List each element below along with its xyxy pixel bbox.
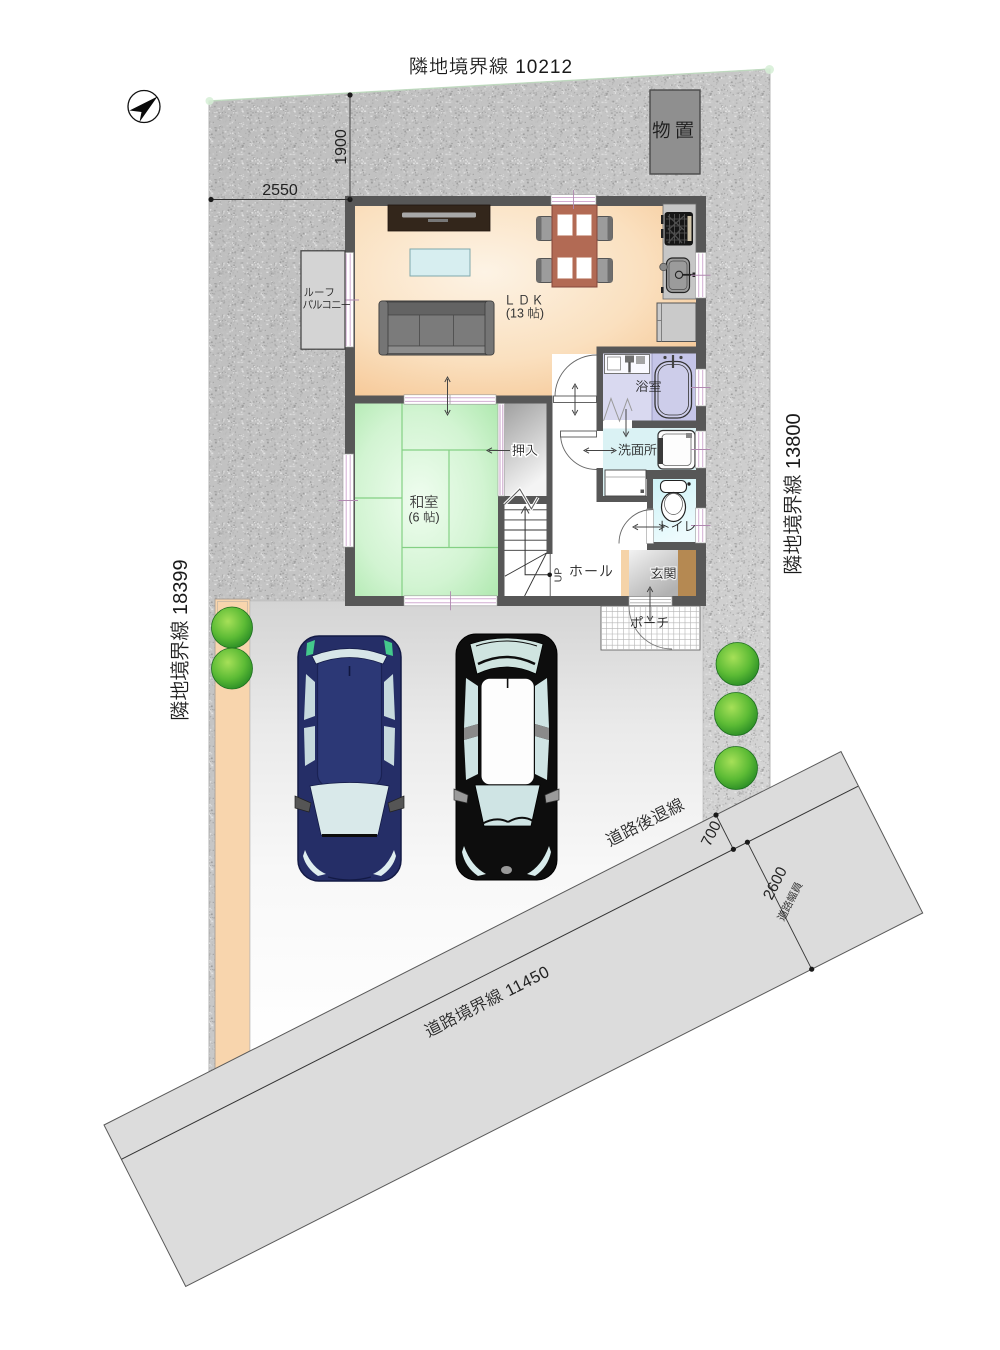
svg-text:隣地境界線 10212: 隣地境界線 10212 (409, 56, 573, 78)
svg-text:隣地境界線 18399: 隣地境界線 18399 (170, 559, 192, 720)
svg-text:バルコニー: バルコニー (303, 300, 351, 312)
svg-text:和室: 和室 (410, 494, 439, 511)
svg-text:押入: 押入 (512, 443, 538, 458)
svg-text:ＬＤＫ: ＬＤＫ (503, 293, 545, 308)
svg-text:(13 帖): (13 帖) (506, 307, 544, 321)
svg-text:洗面所: 洗面所 (618, 443, 657, 458)
svg-text:トイレ: トイレ (657, 519, 696, 534)
svg-text:ルーフ: ルーフ (304, 287, 336, 299)
svg-text:物置: 物置 (652, 121, 698, 142)
svg-text:UP: UP (553, 568, 565, 583)
svg-text:2550: 2550 (262, 182, 298, 199)
svg-text:浴室: 浴室 (635, 379, 661, 394)
svg-text:1900: 1900 (333, 129, 350, 165)
svg-text:ポーチ: ポーチ (630, 616, 669, 631)
svg-text:隣地境界線 13800: 隣地境界線 13800 (783, 413, 805, 574)
svg-text:(6 帖): (6 帖) (408, 511, 439, 525)
svg-text:玄関: 玄関 (650, 566, 676, 581)
svg-text:ホール: ホール (569, 563, 614, 579)
